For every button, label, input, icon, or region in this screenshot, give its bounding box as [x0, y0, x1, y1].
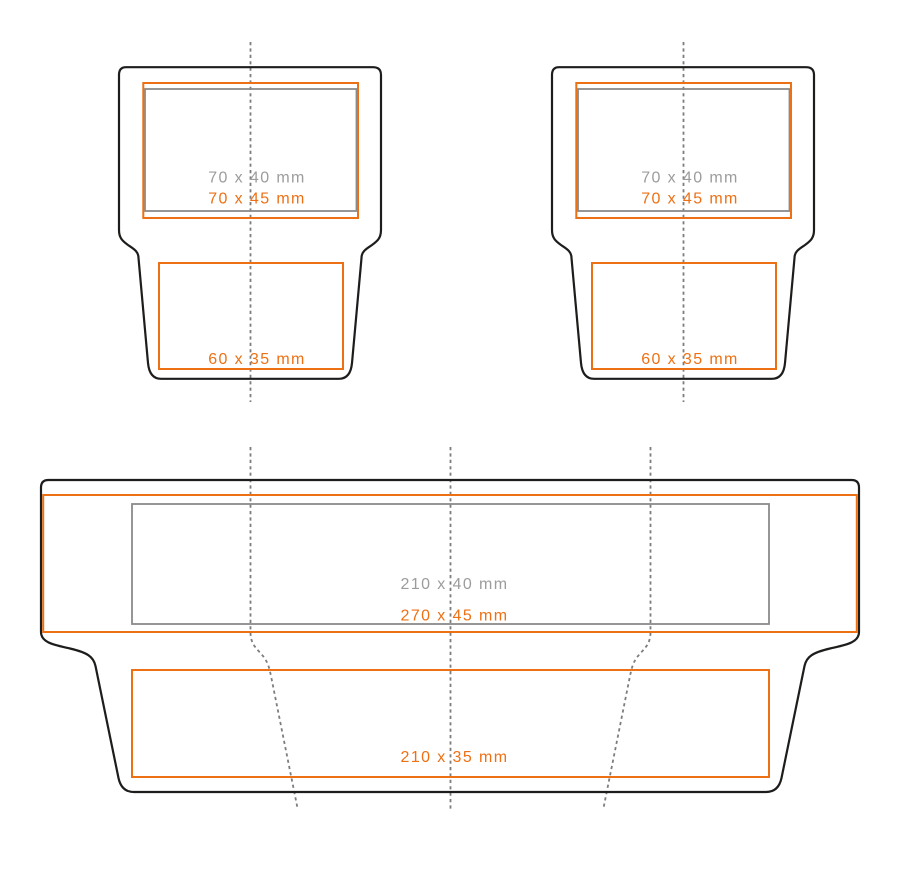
fold-lines	[251, 42, 684, 810]
max-print-area-label: 70 x 45 mm	[208, 191, 306, 208]
standard-print-area-label: 70 x 40 mm	[208, 170, 306, 187]
print-template-diagram: 70 x 40 mm 70 x 45 mm 60 x 35 mm 210 x 4…	[0, 0, 900, 870]
max-print-area-label: 270 x 45 mm	[401, 608, 509, 625]
flap-print-area-label: 60 x 35 mm	[208, 351, 306, 368]
right-fold-line-large	[604, 447, 651, 808]
standard-print-area-label: 210 x 40 mm	[401, 576, 509, 593]
left-fold-line-large	[251, 447, 298, 808]
flap-print-area-label: 210 x 35 mm	[401, 749, 509, 766]
